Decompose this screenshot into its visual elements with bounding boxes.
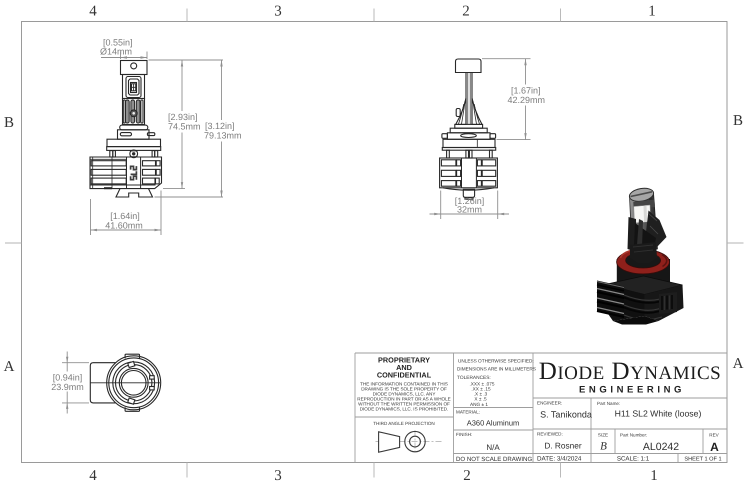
svg-text:Part Number:: Part Number: [620, 433, 647, 438]
svg-text:B: B [733, 113, 743, 129]
svg-text:REV: REV [709, 433, 719, 438]
svg-text:A: A [4, 359, 15, 375]
svg-text:ENGINEER:: ENGINEER: [537, 401, 562, 406]
svg-text:[0.94in]: [0.94in] [53, 373, 83, 383]
svg-text:A: A [710, 440, 719, 454]
svg-text:SCALE: 1:1: SCALE: 1:1 [617, 456, 650, 463]
svg-text:42.29mm: 42.29mm [508, 95, 546, 105]
svg-text:CONFIDENTIAL: CONFIDENTIAL [377, 371, 432, 380]
svg-text:[1.67in]: [1.67in] [511, 86, 541, 96]
svg-text:1: 1 [650, 468, 658, 484]
svg-text:DIODE DYNAMICS, LLC. IS PROHIB: DIODE DYNAMICS, LLC. IS PROHIBITED. [360, 407, 449, 412]
svg-text:DIMENSIONS ARE IN MILLIMETERS: DIMENSIONS ARE IN MILLIMETERS [457, 367, 536, 372]
svg-text:N/A: N/A [486, 443, 500, 452]
svg-text:MATERIAL:: MATERIAL: [456, 410, 480, 415]
svg-text:ENGINEERING: ENGINEERING [579, 385, 685, 396]
svg-text:[2.93in]: [2.93in] [168, 112, 198, 122]
svg-text:A: A [733, 356, 744, 372]
svg-text:2: 2 [463, 468, 471, 484]
svg-text:DO NOT SCALE DRAWING: DO NOT SCALE DRAWING [456, 456, 532, 463]
svg-text:THIRD ANGLE PROJECTION: THIRD ANGLE PROJECTION [373, 421, 435, 426]
svg-text:REVIEWED:: REVIEWED: [537, 432, 563, 437]
svg-text:3: 3 [274, 468, 282, 484]
svg-text:Ø14mm: Ø14mm [100, 47, 132, 57]
svg-text:FINISH:: FINISH: [456, 432, 472, 437]
svg-text:SHEET 1 OF 1: SHEET 1 OF 1 [684, 457, 721, 463]
svg-text:ANG ± 1: ANG ± 1 [470, 402, 488, 407]
svg-text:X ± .5: X ± .5 [474, 397, 487, 402]
svg-text:[3.12in]: [3.12in] [205, 121, 235, 131]
svg-text:2: 2 [462, 4, 470, 20]
svg-text:SIZE: SIZE [598, 433, 608, 438]
svg-text:B: B [4, 115, 14, 131]
svg-text:4: 4 [89, 4, 97, 20]
svg-text:[1.64in]: [1.64in] [110, 211, 140, 221]
svg-text:DATE: 3/4/2024: DATE: 3/4/2024 [537, 456, 582, 463]
svg-text:UNLESS OTHERWISE SPECIFIED:: UNLESS OTHERWISE SPECIFIED: [458, 359, 534, 364]
svg-text:H11 SL2 White (loose): H11 SL2 White (loose) [615, 409, 702, 419]
svg-text:B: B [600, 441, 607, 453]
svg-text:A360 Aluminum: A360 Aluminum [467, 419, 520, 428]
svg-text:TOLERANCES:: TOLERANCES: [457, 375, 491, 381]
svg-text:S. Tanikonda: S. Tanikonda [540, 410, 592, 420]
svg-text:23.9mm: 23.9mm [51, 382, 84, 392]
svg-text:AL0242: AL0242 [643, 441, 679, 453]
svg-text:4: 4 [89, 468, 97, 484]
svg-text:41.60mm: 41.60mm [105, 221, 143, 231]
svg-text:32mm: 32mm [457, 205, 482, 215]
svg-text:DIODE DYNAMICS: DIODE DYNAMICS [539, 358, 721, 385]
svg-text:79.13mm: 79.13mm [204, 131, 242, 141]
svg-text:D. Rosner: D. Rosner [544, 441, 582, 451]
svg-text:1: 1 [648, 4, 656, 20]
svg-text:3: 3 [274, 4, 282, 20]
svg-text:74.5mm: 74.5mm [168, 122, 201, 132]
svg-text:Part Name:: Part Name: [597, 401, 620, 406]
